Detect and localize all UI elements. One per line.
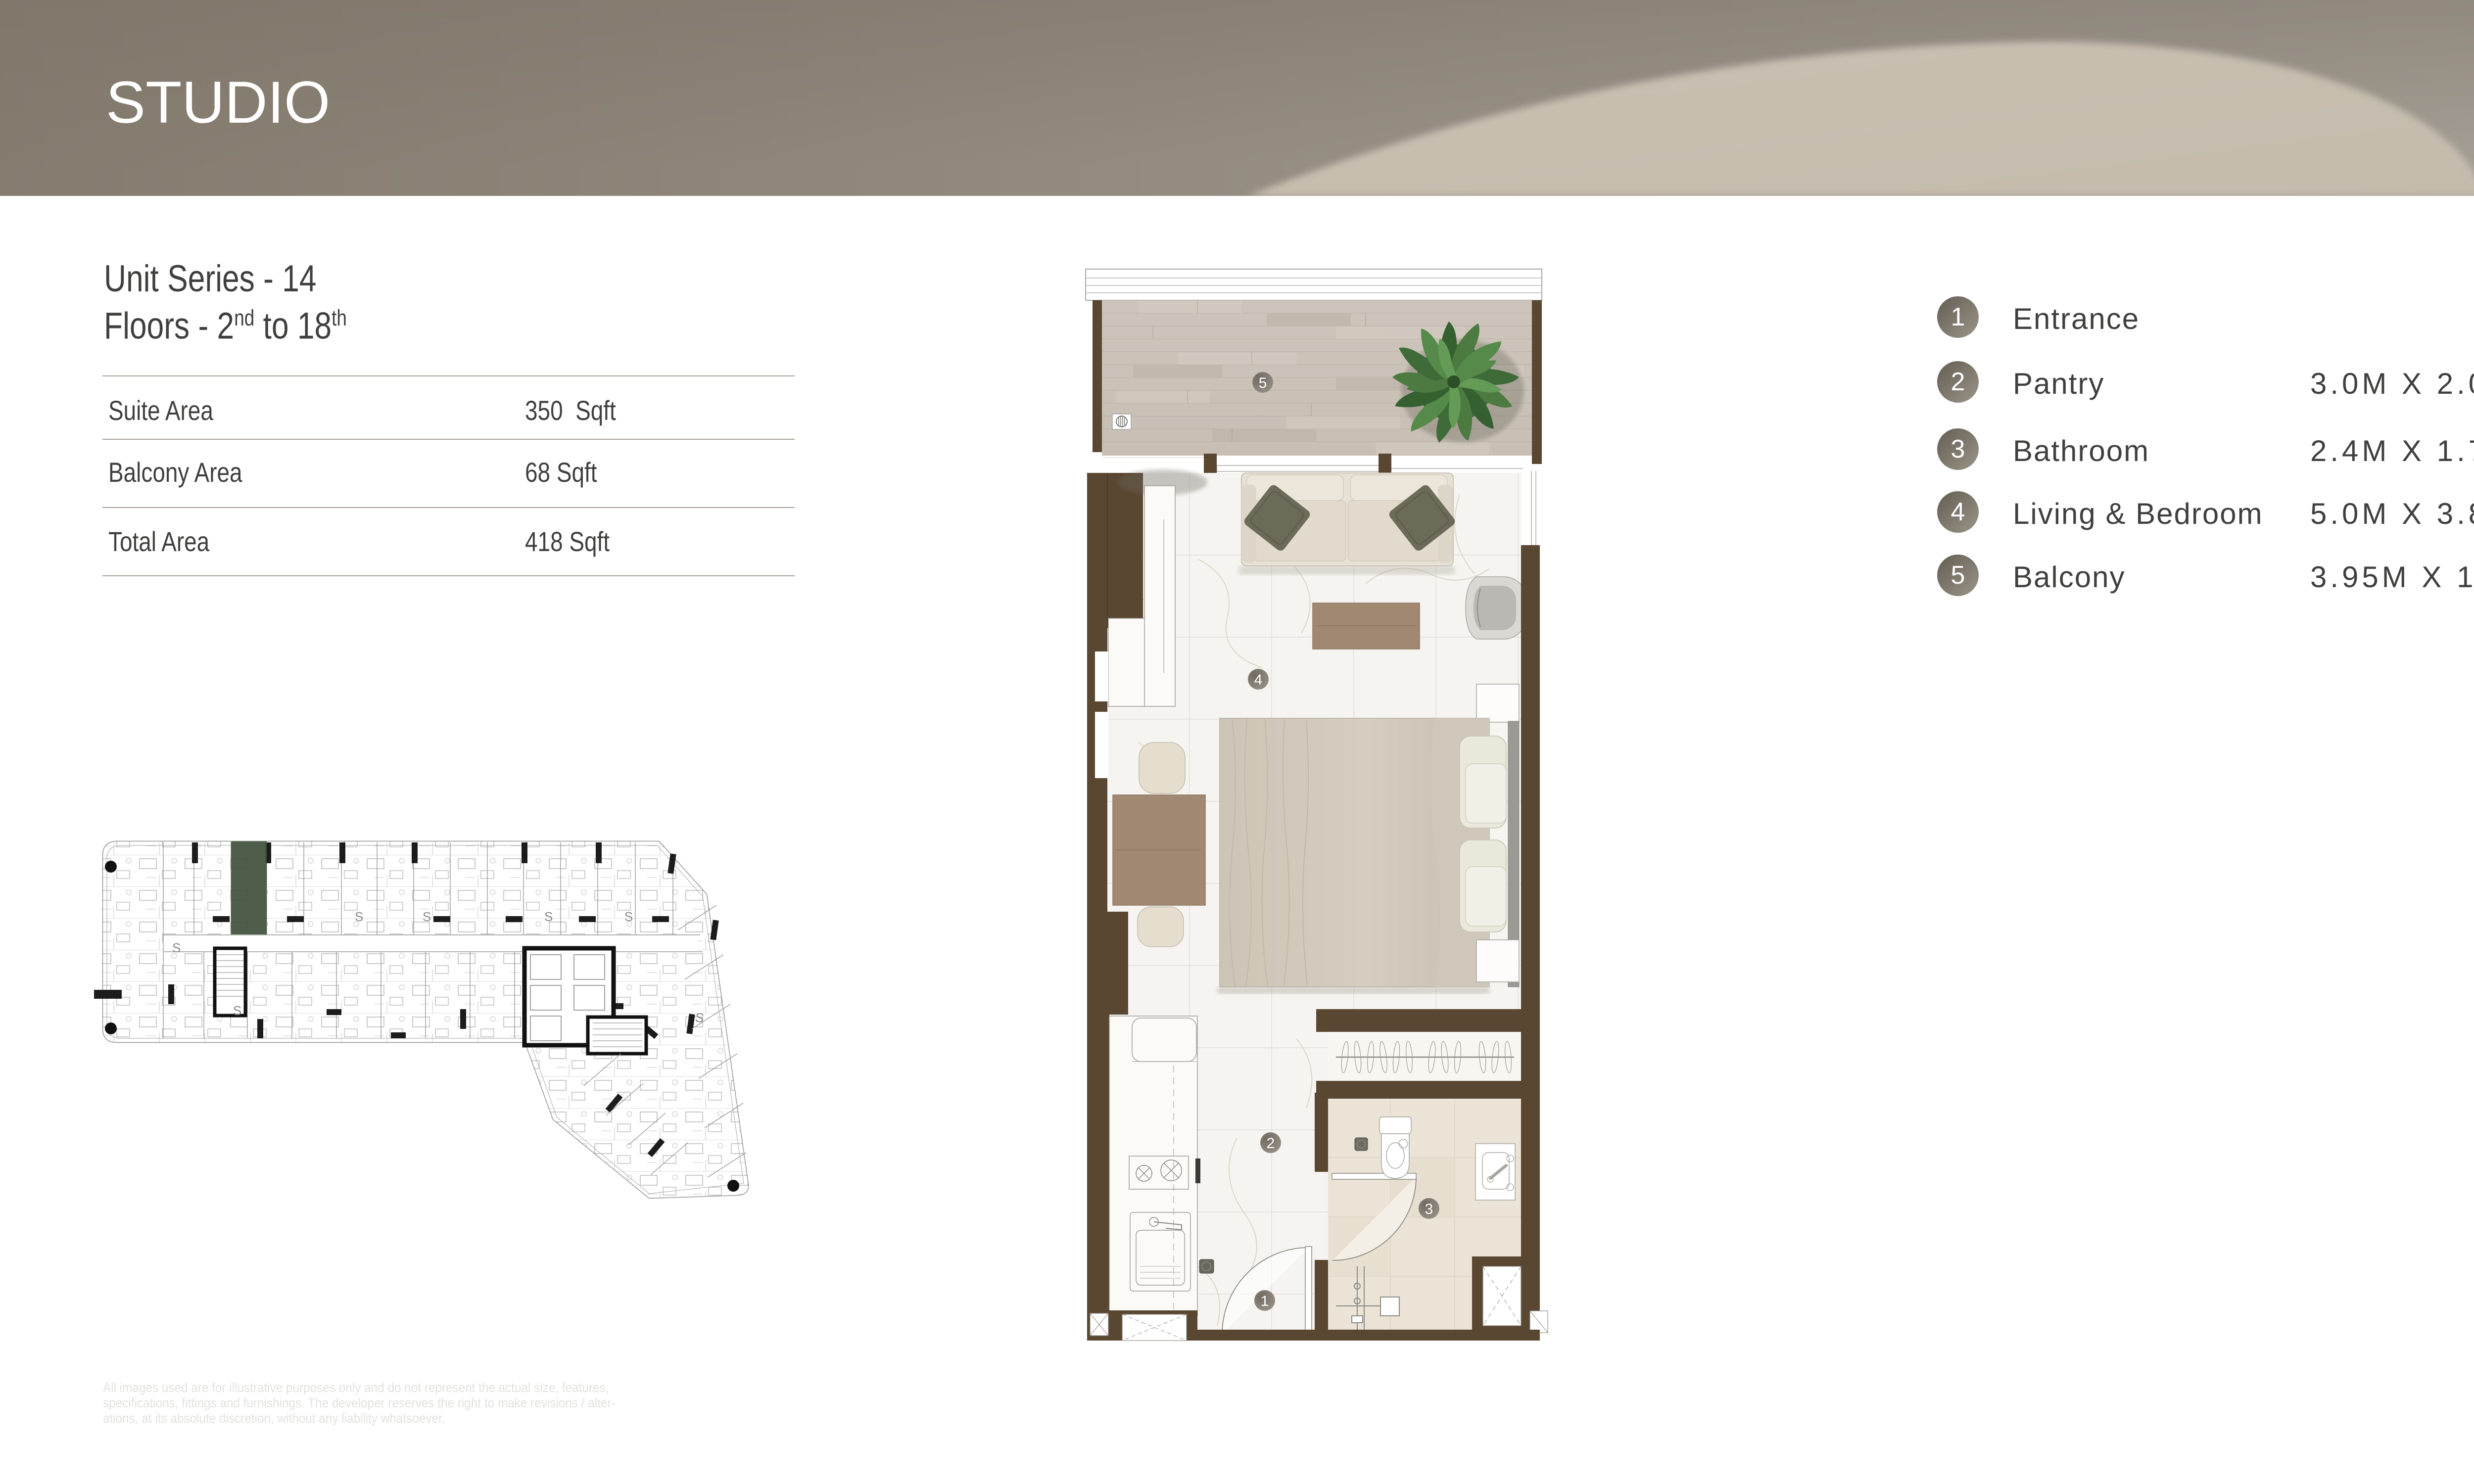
svg-text:3: 3	[1425, 1201, 1433, 1217]
svg-text:S: S	[624, 909, 633, 924]
svg-text:S: S	[423, 909, 431, 924]
svg-text:S: S	[355, 909, 363, 924]
svg-text:2: 2	[1267, 1135, 1275, 1152]
svg-text:S: S	[172, 940, 181, 955]
svg-text:S: S	[233, 1003, 241, 1018]
svg-text:S: S	[544, 909, 553, 924]
svg-text:1: 1	[1261, 1293, 1269, 1309]
svg-text:4: 4	[1254, 672, 1263, 688]
svg-text:5: 5	[1259, 375, 1267, 391]
